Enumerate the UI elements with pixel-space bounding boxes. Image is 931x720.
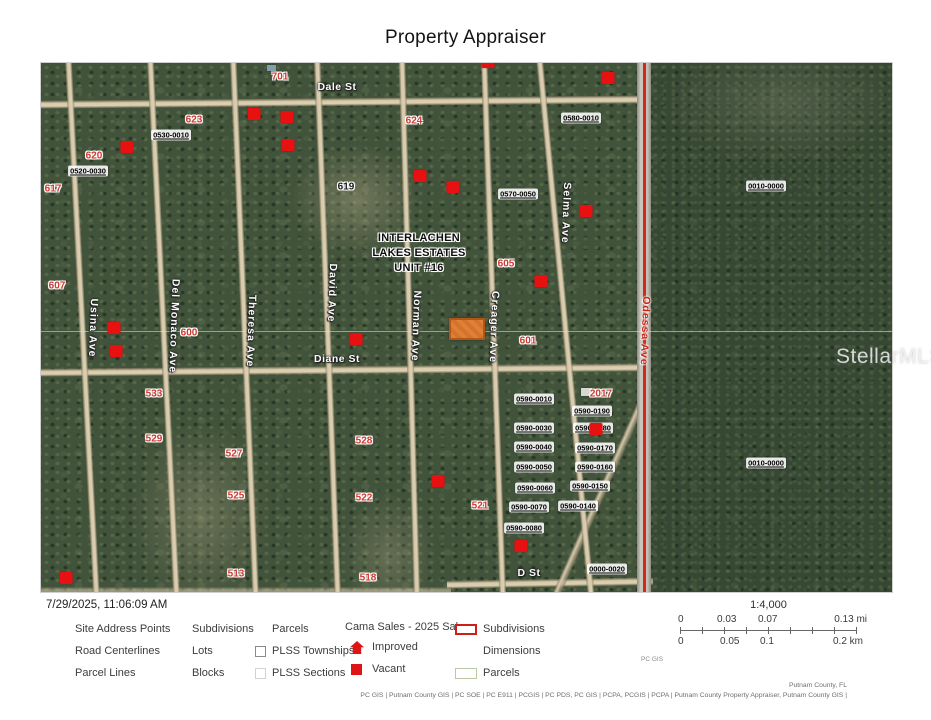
legend-dimensions: Dimensions [483,645,540,657]
legend-cama-sales-header: Cama Sales - 2025 Sales [345,621,470,633]
sale-marker[interactable] [590,423,603,435]
legend-overlay-column: Subdivisions Dimensions Parcels [455,618,545,684]
address-label: 513 [228,569,245,580]
parcel-label: 0520-0030 [68,166,108,177]
sale-marker[interactable] [515,540,528,552]
address-label: 701 [272,72,289,83]
address-label: 2017 [590,389,612,400]
parcel-label: 0590-0050 [514,462,554,473]
page: Property Appraiser INTERLACHEN LAKES EST… [0,0,931,720]
attribution: Putnam County, FL PC GIS | Putnam County… [360,681,847,701]
bottom-road [41,587,451,593]
street-label-usina-ave: Usina Ave [86,298,100,357]
address-label: 533 [146,389,163,400]
sale-marker[interactable] [281,111,294,123]
address-label: 623 [186,115,203,126]
legend-improved: Improved [372,641,418,653]
building [267,65,276,71]
subdivision-label: INTERLACHEN LAKES ESTATES UNIT #16 [372,231,465,276]
parcel-label: 0530-0010 [151,130,191,141]
street-label-odessa-ave: Odessa Ave [638,296,652,366]
sale-marker[interactable] [580,205,593,217]
sale-marker[interactable] [447,181,460,193]
scale-mi-2: 0.07 [758,614,777,625]
address-label: 617 [45,184,62,195]
east-forest-block [651,63,893,593]
address-label: 624 [406,116,423,127]
address-label: 522 [356,493,373,504]
sale-marker[interactable] [110,345,123,357]
address-label: 607 [49,281,66,292]
street-label-diane-st: Diane St [314,353,360,365]
legend-blocks: Blocks [192,667,224,679]
timestamp: 7/29/2025, 11:06:09 AM [46,599,167,611]
parcel-label: 0590-0070 [509,502,549,513]
address-label: 600 [181,328,198,339]
scale-km-0: 0 [678,636,684,647]
plss-sections-checkbox[interactable] [255,668,266,679]
legend-lots: Lots [192,645,213,657]
address-label: 518 [360,573,377,584]
street-label-d-st: D St [518,567,541,579]
selected-parcel[interactable] [449,318,485,340]
street-label-selma-ave: Selma Ave [559,182,573,244]
legend-road-centerlines: Road Centerlines [75,645,160,657]
sale-marker[interactable] [350,333,363,345]
legend-vacant: Vacant [372,663,405,675]
legend-sales-column: Cama Sales - 2025 Sales Improved Vacant [345,618,470,680]
vacant-square-icon [351,664,362,675]
address-label: 601 [520,336,537,347]
legend-subdivisions-overlay: Subdivisions [483,623,545,635]
scale-mi-1: 0.03 [717,614,736,625]
plss-townships-checkbox[interactable] [255,646,266,657]
parcel-label: 0570-0050 [498,189,538,200]
street-label-norman-ave: Norman Ave [409,290,423,361]
subdivision-line: LAKES ESTATES [372,246,465,261]
address-label: 527 [226,449,243,460]
parcel-label: 0590-0170 [575,443,615,454]
street-label-dale-st: Dale St [317,81,356,93]
scale-mi-0: 0 [678,614,684,625]
sale-marker[interactable] [108,322,121,334]
legend-parcel-lines: Parcel Lines [75,667,136,679]
address-label: 525 [228,491,245,502]
scale-mi-3: 0.13 mi [834,614,867,625]
sale-marker[interactable] [282,139,295,151]
legend-plss-sections: PLSS Sections [272,667,345,679]
sale-marker[interactable] [414,170,427,182]
parcel-label: 0580-0010 [561,113,601,124]
address-label: 620 [86,151,103,162]
parcel-label: 0010-0000 [746,458,786,469]
page-title: Property Appraiser [0,27,931,49]
subdivisions-outline-icon [455,624,477,635]
scale-ratio: 1:4,000 [680,599,857,611]
address-label: 619 [338,182,355,193]
legend-site-address-points: Site Address Points [75,623,170,635]
legend-layers-column: Site Address Points Road Centerlines Par… [75,618,170,684]
parcel-label: 0010-0000 [746,181,786,192]
street-label-theresa-ave: Theresa Ave [244,294,259,367]
attribution-line2: PC GIS | Putnam County GIS | PC SOE | PC… [360,691,847,701]
parcel-label: 0000-0020 [587,564,627,575]
subdivision-line: UNIT #16 [372,261,465,276]
address-label: 529 [146,434,163,445]
parcel-label: 0590-0030 [514,423,554,434]
map-canvas[interactable]: INTERLACHEN LAKES ESTATES UNIT #16 Dale … [40,62,893,593]
address-label: 605 [498,259,515,270]
address-label: 521 [472,501,489,512]
watermark: StellarMLS [836,345,931,369]
parcel-label: 0590-0160 [575,462,615,473]
parcel-label: 0590-0150 [570,481,610,492]
parcel-label: 0590-0190 [572,406,612,417]
legend-plss-column: Parcels PLSS Townships PLSS Sections [255,618,354,684]
address-label: 528 [356,436,373,447]
street-label-creager-ave: Creager Ave [487,291,502,363]
sale-marker[interactable] [535,275,548,287]
improved-house-icon [350,641,364,654]
attribution-line1: Putnam County, FL [360,681,847,691]
parcels-outline-icon [455,668,477,679]
legend-parcels: Parcels [272,623,309,635]
parcel-label: 0590-0080 [504,523,544,534]
sale-marker[interactable] [432,475,445,487]
parcel-label: 0590-0040 [514,442,554,453]
scale-credit: PC GIS [641,656,663,663]
scale-km-3: 0.2 km [833,636,863,647]
scale-km-2: 0.1 [760,636,774,647]
legend-subdivisions: Subdivisions [192,623,254,635]
sale-marker[interactable] [482,62,495,68]
parcel-label: 0590-0140 [558,501,598,512]
street-label-david-ave: David Ave [325,263,339,322]
sale-marker[interactable] [248,108,261,120]
parcel-label: 0590-0060 [515,483,555,494]
sale-marker[interactable] [121,141,134,153]
legend-plss-townships: PLSS Townships [272,645,354,657]
sale-marker[interactable] [60,572,73,584]
legend-plat-column: Subdivisions Lots Blocks [192,618,254,684]
scale-km-1: 0.05 [720,636,739,647]
subdivision-line: INTERLACHEN [372,231,465,246]
parcel-label: 0590-0010 [514,394,554,405]
legend-parcels-overlay: Parcels [483,667,520,679]
sale-marker[interactable] [602,72,615,84]
